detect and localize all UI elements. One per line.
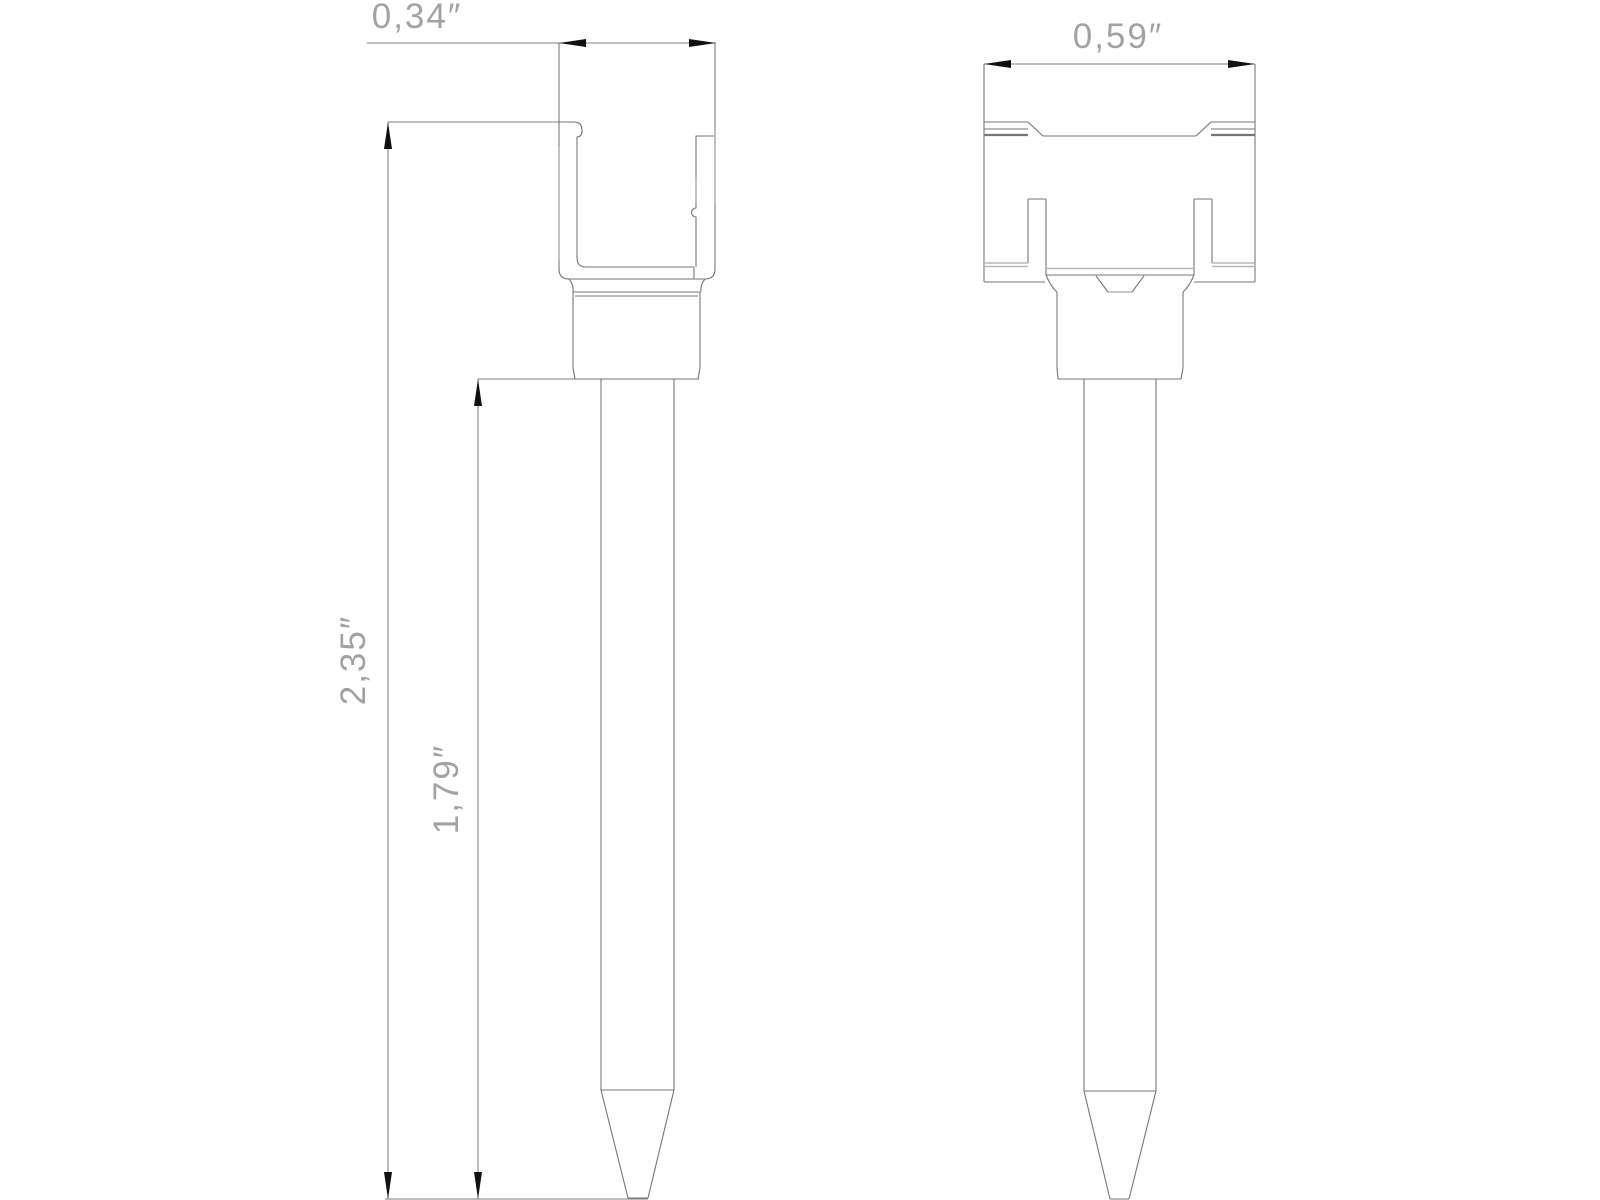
front-view-highlight-lines [559, 128, 715, 260]
side-collar-left-edge [1057, 292, 1058, 379]
front-neck-left-curve [569, 279, 573, 292]
front-collar-right-edge [698, 292, 700, 379]
side-tip-left-taper [1084, 1091, 1110, 1199]
side-lip-right-chamfer [1196, 122, 1211, 136]
arrow-front-width-right [689, 39, 716, 47]
front-view [559, 43, 715, 1198]
side-view [984, 64, 1255, 1199]
side-lip-left-chamfer [1028, 122, 1043, 136]
arrow-overall-height-bottom [384, 1172, 392, 1199]
front-cup-inner-left-lip [559, 122, 694, 267]
front-cup-outline [559, 43, 715, 279]
front-collar-left-edge [573, 292, 575, 379]
technical-drawing-page: 0,34″ 0,59″ 2,35″ 1,79″ [0, 0, 1600, 1200]
arrow-pin-height-top [474, 379, 482, 406]
arrow-side-width-right [1228, 60, 1255, 68]
arrow-side-width-left [984, 60, 1011, 68]
arrow-pin-height-bottom [474, 1172, 482, 1199]
side-tip-right-taper [1129, 1091, 1156, 1199]
dimensions [367, 43, 1255, 1199]
side-collar-right-edge [1181, 292, 1183, 379]
side-collar-inner-right-chamfer [1132, 276, 1144, 292]
side-collar-left-fillet [1046, 275, 1057, 292]
arrowheads [384, 39, 1255, 1199]
arrow-front-width-left [559, 39, 586, 47]
front-cup-inner-right-wall [692, 136, 716, 267]
dim-label-overall-height: 2,35″ [334, 615, 373, 706]
side-collar-right-fillet [1183, 275, 1194, 292]
dim-label-front-width: 0,34″ [372, 0, 463, 36]
dim-label-pin-height: 1,79″ [427, 744, 466, 835]
technical-drawing: 0,34″ 0,59″ 2,35″ 1,79″ [0, 0, 1600, 1200]
arrow-overall-height-top [384, 122, 392, 149]
front-tip-right-taper [648, 1090, 674, 1198]
front-tip-left-taper [601, 1090, 628, 1198]
front-neck-right-curve [701, 279, 705, 292]
dim-label-side-width: 0,59″ [1073, 17, 1164, 56]
side-view-highlight-lines [984, 263, 1255, 292]
dimension-labels: 0,34″ 0,59″ 2,35″ 1,79″ [334, 0, 1163, 834]
side-collar-inner-left-chamfer [1096, 276, 1108, 292]
